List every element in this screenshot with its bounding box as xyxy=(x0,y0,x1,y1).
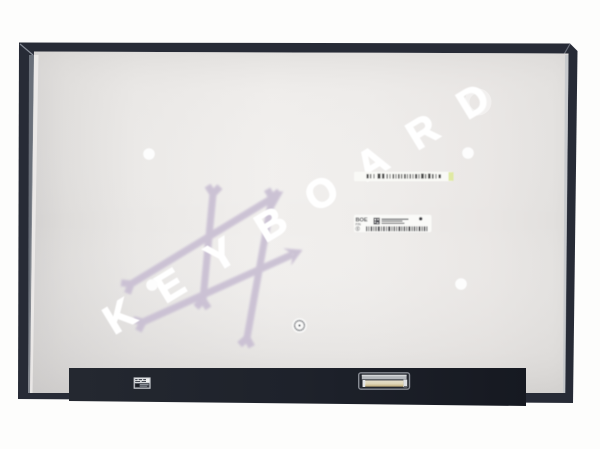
svg-text:Ⓢ: Ⓢ xyxy=(355,226,360,233)
